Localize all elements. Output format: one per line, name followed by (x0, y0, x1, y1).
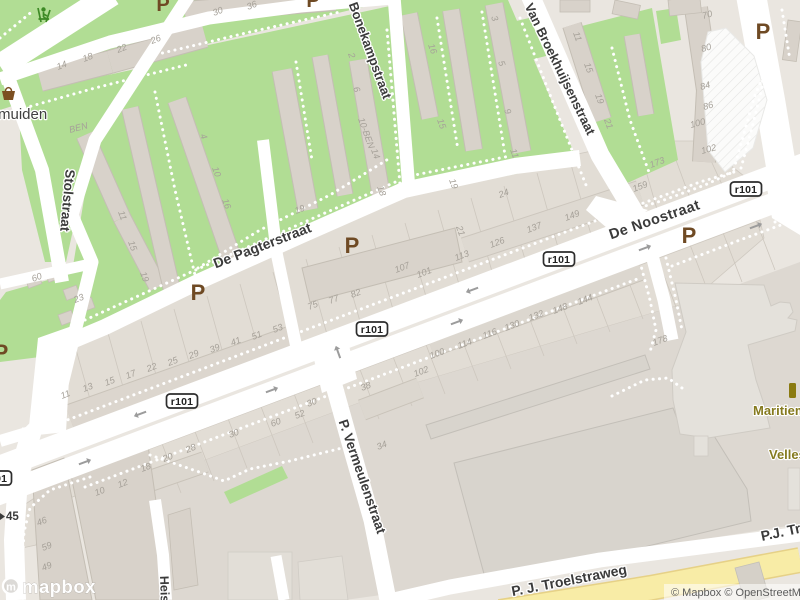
svg-text:r101: r101 (361, 324, 383, 336)
svg-text:P: P (0, 340, 8, 365)
svg-text:r101: r101 (0, 473, 7, 485)
svg-text:Heistraat: Heistraat (157, 576, 173, 600)
svg-text:m: m (6, 582, 16, 594)
svg-text:P: P (756, 19, 771, 44)
svg-text:mapbox: mapbox (22, 576, 96, 597)
svg-text:P: P (156, 0, 169, 16)
svg-text:Maritiem: Maritiem (753, 403, 800, 418)
svg-text:r101: r101 (735, 184, 757, 196)
svg-text:P: P (191, 280, 206, 305)
svg-text:Vellestr: Vellestr (769, 447, 800, 462)
svg-text:P: P (306, 0, 319, 12)
svg-text:r101: r101 (548, 254, 570, 266)
svg-text:45: 45 (6, 511, 19, 523)
svg-text:muiden: muiden (0, 106, 47, 123)
svg-text:P: P (682, 223, 697, 248)
svg-text:© Mapbox © OpenStreetMap: © Mapbox © OpenStreetMap (671, 587, 800, 599)
svg-text:r101: r101 (171, 396, 193, 408)
svg-text:P: P (345, 233, 360, 258)
